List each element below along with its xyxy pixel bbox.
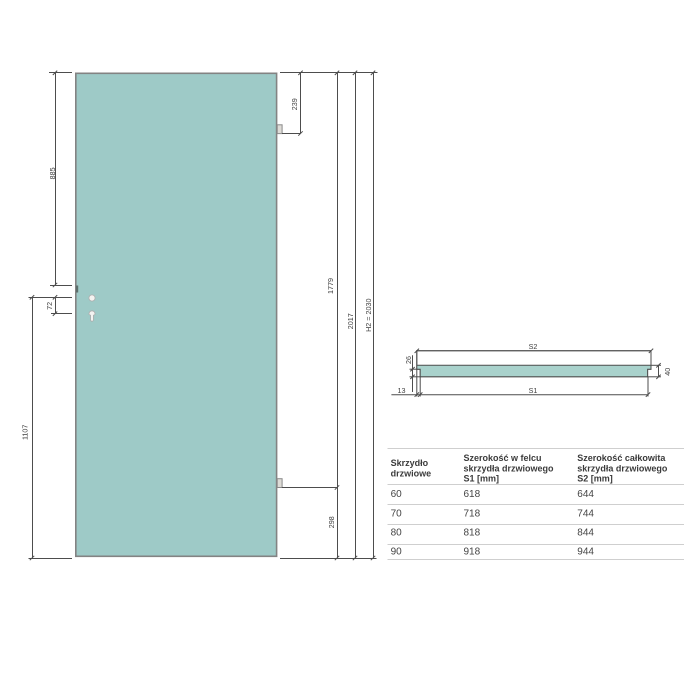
svg-text:26: 26	[404, 356, 413, 364]
svg-text:718: 718	[464, 509, 481, 520]
svg-text:644: 644	[577, 489, 594, 500]
svg-text:239: 239	[290, 98, 299, 110]
svg-text:744: 744	[577, 509, 594, 520]
svg-text:90: 90	[391, 547, 403, 558]
svg-text:Szerokość w felcu: Szerokość w felcu	[464, 453, 542, 463]
svg-text:S1 [mm]: S1 [mm]	[464, 474, 500, 484]
svg-text:S2: S2	[529, 342, 538, 351]
svg-text:S2 [mm]: S2 [mm]	[577, 474, 613, 484]
svg-text:S1: S1	[529, 386, 538, 395]
svg-text:885: 885	[48, 167, 57, 179]
svg-text:60: 60	[391, 489, 403, 500]
svg-text:818: 818	[464, 528, 481, 539]
svg-text:2017: 2017	[346, 313, 355, 329]
svg-text:70: 70	[391, 509, 403, 520]
svg-text:944: 944	[577, 547, 594, 558]
svg-text:918: 918	[464, 547, 481, 558]
svg-text:Skrzydło: Skrzydło	[391, 458, 429, 468]
svg-text:drzwiowe: drzwiowe	[391, 469, 432, 479]
svg-text:H2 = 2030: H2 = 2030	[364, 299, 373, 332]
svg-text:72: 72	[45, 302, 54, 310]
svg-text:618: 618	[464, 489, 481, 500]
svg-text:Szerokość całkowita: Szerokość całkowita	[577, 453, 666, 463]
svg-text:80: 80	[391, 528, 403, 539]
svg-text:40: 40	[663, 368, 672, 376]
svg-text:844: 844	[577, 528, 594, 539]
svg-text:13: 13	[398, 386, 406, 395]
svg-text:298: 298	[327, 516, 336, 528]
svg-text:1779: 1779	[326, 278, 335, 294]
svg-text:skrzydła drzwiowego: skrzydła drzwiowego	[577, 463, 668, 473]
svg-text:skrzydła drzwiowego: skrzydła drzwiowego	[464, 463, 555, 473]
svg-text:1107: 1107	[20, 425, 29, 440]
